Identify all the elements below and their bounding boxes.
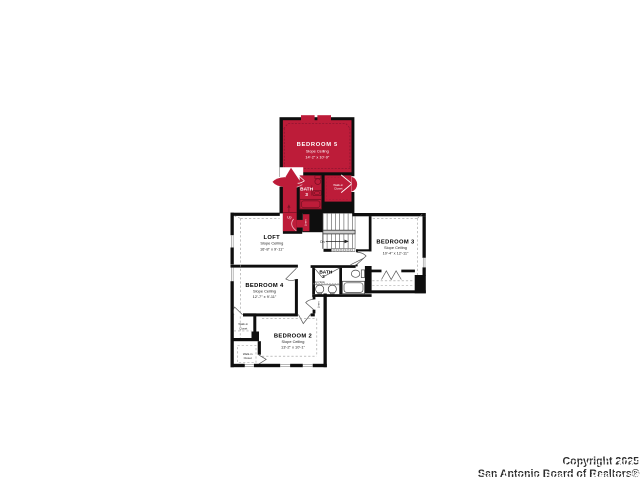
svg-text:Linen: Linen [303, 219, 307, 226]
svg-text:Dn: Dn [320, 240, 324, 244]
svg-text:3: 3 [305, 192, 308, 198]
svg-text:BATH: BATH [300, 187, 314, 193]
svg-text:Closet: Closet [244, 356, 252, 360]
svg-text:Slope Ceiling: Slope Ceiling [253, 288, 276, 293]
svg-text:Up: Up [287, 216, 291, 220]
svg-text:12'-7" x 9'-11": 12'-7" x 9'-11" [253, 294, 277, 299]
svg-text:San Antonio Board of Realtors®: San Antonio Board of Realtors® [480, 470, 640, 480]
svg-text:BEDROOM 5: BEDROOM 5 [297, 142, 338, 148]
svg-text:10'-4" x 12'-11": 10'-4" x 12'-11" [383, 251, 409, 256]
svg-text:Slope Ceiling: Slope Ceiling [282, 339, 305, 344]
svg-text:Closet: Closet [334, 186, 343, 190]
svg-text:16'-8" x 9'-11": 16'-8" x 9'-11" [260, 246, 284, 251]
svg-text:14'-2" x 10'-9": 14'-2" x 10'-9" [305, 154, 330, 159]
svg-text:Slope Ceiling: Slope Ceiling [260, 241, 283, 246]
svg-text:Slope Ceiling: Slope Ceiling [306, 148, 329, 153]
svg-text:2: 2 [322, 274, 325, 280]
svg-text:Linen: Linen [317, 301, 321, 308]
svg-text:13'-2" x 10'-1": 13'-2" x 10'-1" [281, 345, 306, 350]
svg-text:Slope Ceiling: Slope Ceiling [384, 245, 407, 250]
